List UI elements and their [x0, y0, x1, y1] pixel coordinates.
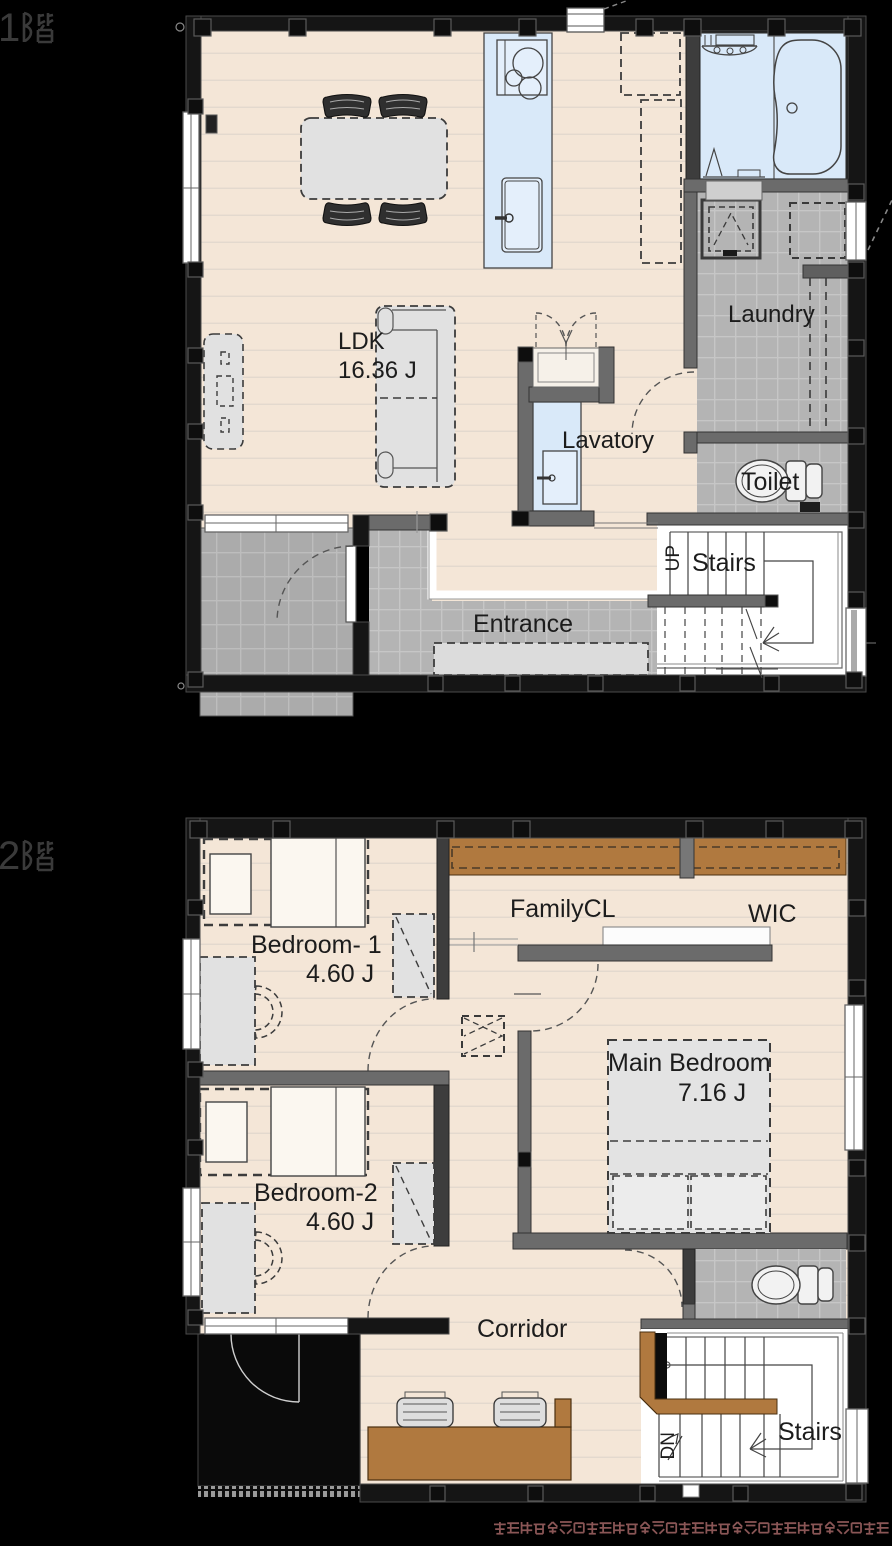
svg-text:LDK: LDK	[338, 328, 385, 355]
svg-text:2: 2	[0, 834, 20, 878]
svg-text:4.60 J: 4.60 J	[306, 960, 374, 988]
svg-text:Bedroom-2: Bedroom-2	[254, 1179, 378, 1207]
svg-text:Bedroom- 1: Bedroom- 1	[251, 931, 382, 959]
svg-text:Stairs: Stairs	[778, 1418, 842, 1446]
svg-text:Main Bedroom: Main Bedroom	[608, 1049, 771, 1077]
svg-text:Entrance: Entrance	[473, 610, 573, 638]
svg-text:FamilyCL: FamilyCL	[510, 895, 616, 923]
svg-text:Corridor: Corridor	[477, 1315, 567, 1343]
svg-text:Stairs: Stairs	[692, 549, 756, 577]
svg-text:Toilet: Toilet	[741, 468, 799, 496]
svg-text:16.36 J: 16.36 J	[338, 357, 417, 384]
svg-text:WIC: WIC	[748, 900, 797, 928]
svg-text:UP: UP	[663, 545, 684, 571]
svg-text:7.16 J: 7.16 J	[678, 1079, 746, 1107]
svg-text:1: 1	[0, 6, 20, 50]
svg-text:Laundry: Laundry	[728, 301, 815, 328]
svg-text:4.60 J: 4.60 J	[306, 1208, 374, 1236]
svg-text:Lavatory: Lavatory	[562, 427, 654, 454]
